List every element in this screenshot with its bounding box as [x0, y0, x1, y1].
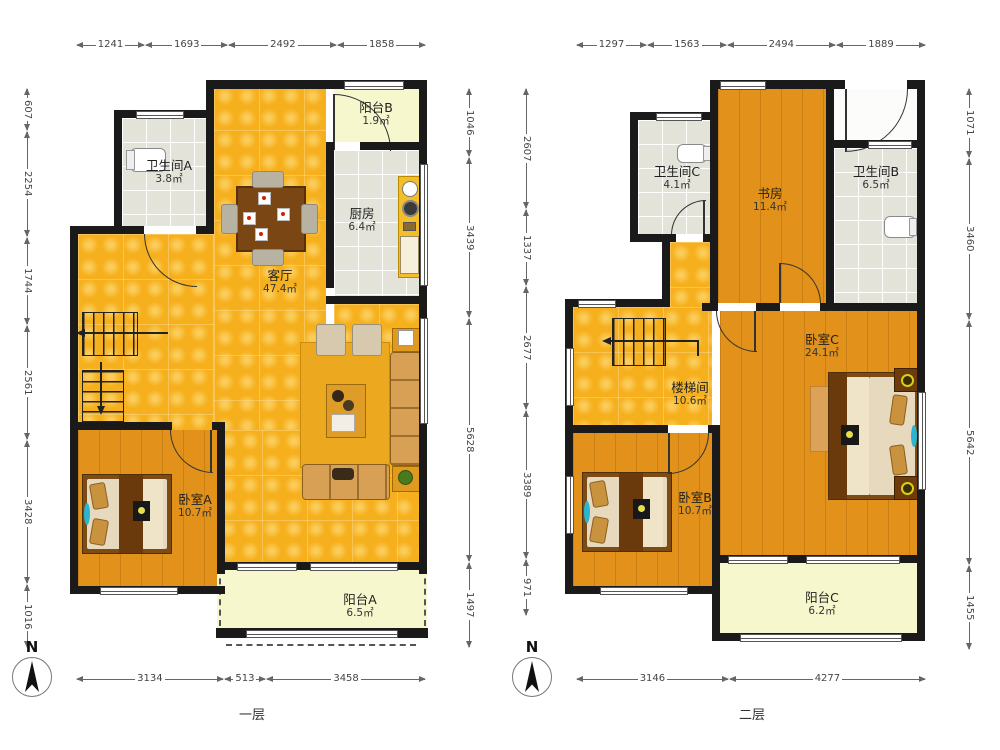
- wall: [712, 555, 720, 641]
- dim-segment: 1241: [76, 38, 145, 52]
- lamp-icon: [398, 330, 414, 346]
- balcony-dashed-edge: [226, 644, 416, 646]
- window: [728, 556, 788, 564]
- room-label-living: 客厅 47.4㎡: [235, 268, 325, 296]
- dim-segment: 2254: [20, 131, 34, 236]
- room-name: 卫生间B: [830, 164, 922, 179]
- stairs-arrow: [697, 340, 699, 356]
- dim-segment: 2492: [228, 38, 337, 52]
- room-label-bathroom-b: 卫生间B 6.5㎡: [830, 164, 922, 192]
- window: [344, 81, 404, 90]
- stairs-icon: [612, 318, 666, 366]
- plate-icon: [255, 228, 268, 241]
- room-label-bedroom-b: 卧室B 10.7㎡: [650, 490, 740, 518]
- room-label-study: 书房 11.4㎡: [726, 186, 814, 214]
- dim-line-bottom: 3134 513 3458: [76, 672, 426, 686]
- door-leaf: [210, 430, 212, 472]
- sofa-icon: [390, 352, 422, 466]
- room-name: 阳台A: [312, 592, 408, 607]
- window: [420, 164, 428, 286]
- dim-segment: 607: [20, 88, 34, 131]
- plate-icon: [243, 212, 256, 225]
- window: [100, 587, 178, 595]
- door-leaf: [754, 311, 756, 351]
- balcony-dashed-edge: [219, 568, 221, 626]
- dim-segment: 3134: [76, 672, 224, 686]
- window: [740, 634, 902, 642]
- armchair-icon: [316, 324, 346, 356]
- window: [310, 563, 398, 571]
- room-label-bathroom-c: 卫生间C 4.1㎡: [632, 164, 722, 192]
- room-area: 10.7㎡: [150, 507, 240, 520]
- room-name: 卧室B: [650, 490, 740, 505]
- window: [600, 587, 688, 595]
- room-label-balcony-c: 阳台C 6.2㎡: [774, 590, 870, 618]
- dim-line-bottom: 3146 4277: [576, 672, 926, 686]
- room-name: 卧室A: [150, 492, 240, 507]
- dim-segment: 1693: [145, 38, 228, 52]
- wall: [114, 110, 122, 234]
- dim-segment: 1337: [519, 209, 533, 286]
- chair-icon: [221, 204, 238, 234]
- wall: [196, 226, 214, 234]
- window: [578, 300, 616, 308]
- dim-line-left: 2607 1337 2677 3389 971: [519, 88, 533, 616]
- window: [136, 111, 184, 119]
- dim-segment: 1046: [462, 88, 476, 157]
- stairs-arrowhead: [602, 337, 611, 345]
- room-area: 3.8㎡: [124, 173, 214, 186]
- dim-segment: 513: [224, 672, 266, 686]
- dim-segment: 1889: [836, 38, 926, 52]
- tray-icon: [331, 414, 355, 432]
- dim-segment: 1455: [962, 565, 976, 650]
- dim-line-top: 1241 1693 2492 1858: [76, 38, 426, 52]
- room-name: 阳台B: [332, 100, 420, 115]
- dim-segment: 1297: [576, 38, 647, 52]
- wall: [826, 85, 834, 311]
- room-area: 6.5㎡: [312, 607, 408, 620]
- sofa-cushion: [332, 468, 354, 480]
- teapot-icon: [343, 400, 354, 411]
- plant-icon: [398, 470, 413, 485]
- wall: [326, 296, 427, 304]
- dim-segment: 3458: [266, 672, 426, 686]
- wall: [662, 234, 670, 307]
- chair-icon: [252, 171, 284, 188]
- stairs-arrow: [100, 362, 102, 408]
- floorplan-canvas: 卫生间A 3.8㎡ 阳台B 1.9㎡ 厨房 6.4㎡ 客厅 47.4㎡ 卧室A …: [0, 0, 1000, 750]
- room-label-balcony-b: 阳台B 1.9㎡: [332, 100, 420, 128]
- dim-line-right: 1071 3460 5642 1455: [962, 88, 976, 650]
- room-name: 卫生间C: [632, 164, 722, 179]
- dim-segment: 5642: [962, 320, 976, 565]
- room-area: 6.5㎡: [830, 179, 922, 192]
- wall: [70, 226, 78, 594]
- compass-circle: [12, 657, 52, 697]
- dim-segment: 3146: [576, 672, 729, 686]
- dim-segment: 3460: [962, 158, 976, 320]
- window: [566, 348, 574, 406]
- window: [918, 392, 926, 490]
- room-name: 厨房: [318, 206, 406, 221]
- balcony-dashed-edge: [424, 568, 426, 626]
- window: [656, 113, 702, 121]
- wall: [70, 422, 172, 430]
- compass-icon: N: [510, 640, 554, 697]
- dim-segment: 1563: [647, 38, 727, 52]
- room-name: 楼梯间: [644, 380, 736, 395]
- wall: [565, 299, 573, 594]
- dim-line-right: 1046 3439 5628 1497: [462, 88, 476, 648]
- compass-circle: [512, 657, 552, 697]
- room-area: 4.1㎡: [632, 179, 722, 192]
- dim-segment: 2561: [20, 325, 34, 440]
- dim-segment: 4277: [729, 672, 926, 686]
- room-corridor: [670, 242, 710, 307]
- stairs-arrowhead: [97, 406, 105, 415]
- window: [566, 476, 574, 534]
- room-area: 24.1㎡: [776, 347, 868, 360]
- stairs-arrow: [78, 332, 168, 334]
- wall: [820, 303, 925, 311]
- compass-needle: [25, 661, 39, 692]
- dim-segment: 1744: [20, 237, 34, 325]
- teapot-icon: [332, 390, 344, 402]
- wall: [565, 425, 668, 433]
- window: [868, 141, 912, 149]
- nightstand-icon: [894, 368, 919, 392]
- dim-segment: 971: [519, 559, 533, 616]
- dim-line-left: 607 2254 1744 2561 3428 1016: [20, 88, 34, 648]
- room-name: 客厅: [235, 268, 325, 283]
- dim-segment: 1497: [462, 562, 476, 648]
- sink-icon: [402, 181, 418, 197]
- room-area: 1.9㎡: [332, 115, 420, 128]
- dim-segment: 1071: [962, 88, 976, 158]
- room-area: 11.4㎡: [726, 201, 814, 214]
- dim-segment: 3428: [20, 440, 34, 585]
- dim-segment: 3389: [519, 410, 533, 559]
- room-area: 6.4㎡: [318, 221, 406, 234]
- stairs-icon: [82, 312, 138, 356]
- room-area: 10.6㎡: [644, 395, 736, 408]
- room-label-stairwell: 楼梯间 10.6㎡: [644, 380, 736, 408]
- chair-icon: [301, 204, 318, 234]
- room-area: 47.4㎡: [235, 283, 325, 296]
- dim-segment: 2677: [519, 286, 533, 410]
- wall: [702, 303, 716, 311]
- window: [806, 556, 900, 564]
- window: [237, 563, 297, 571]
- floor2-caption: 二层: [672, 704, 832, 723]
- stairs-arrow: [604, 340, 698, 342]
- window: [246, 630, 398, 638]
- window: [420, 318, 428, 424]
- window: [720, 81, 766, 90]
- dim-segment: 1858: [337, 38, 426, 52]
- room-area: 6.2㎡: [774, 605, 870, 618]
- dim-segment: 2494: [727, 38, 836, 52]
- room-label-kitchen: 厨房 6.4㎡: [318, 206, 406, 234]
- plate-icon: [277, 208, 290, 221]
- dim-line-top: 1297 1563 2494 1889: [576, 38, 926, 52]
- dim-segment: 3439: [462, 157, 476, 317]
- room-name: 书房: [726, 186, 814, 201]
- room-label-bathroom-a: 卫生间A 3.8㎡: [124, 158, 214, 186]
- room-name: 卧室C: [776, 332, 868, 347]
- floor1-caption: 一层: [172, 704, 332, 723]
- compass-icon: N: [10, 640, 54, 697]
- compass-n-label: N: [10, 640, 54, 655]
- room-label-bedroom-a: 卧室A 10.7㎡: [150, 492, 240, 520]
- room-label-bedroom-c: 卧室C 24.1㎡: [776, 332, 868, 360]
- wall: [360, 142, 427, 150]
- dim-segment: 2607: [519, 88, 533, 209]
- door-leaf: [668, 433, 670, 473]
- plate-icon: [258, 192, 271, 205]
- compass-n-label: N: [510, 640, 554, 655]
- compass-needle: [525, 661, 539, 692]
- wall: [756, 303, 780, 311]
- armchair-icon: [352, 324, 382, 356]
- room-area: 10.7㎡: [650, 505, 740, 518]
- fridge-icon: [400, 236, 419, 274]
- door-leaf: [703, 200, 705, 234]
- chair-icon: [252, 249, 284, 266]
- room-label-balcony-a: 阳台A 6.5㎡: [312, 592, 408, 620]
- nightstand-icon: [894, 476, 919, 500]
- door-leaf: [779, 263, 781, 303]
- room-name: 卫生间A: [124, 158, 214, 173]
- toilet-tank: [909, 218, 917, 236]
- wall: [703, 234, 715, 242]
- dim-segment: 5628: [462, 318, 476, 562]
- room-name: 阳台C: [774, 590, 870, 605]
- wall: [710, 85, 718, 311]
